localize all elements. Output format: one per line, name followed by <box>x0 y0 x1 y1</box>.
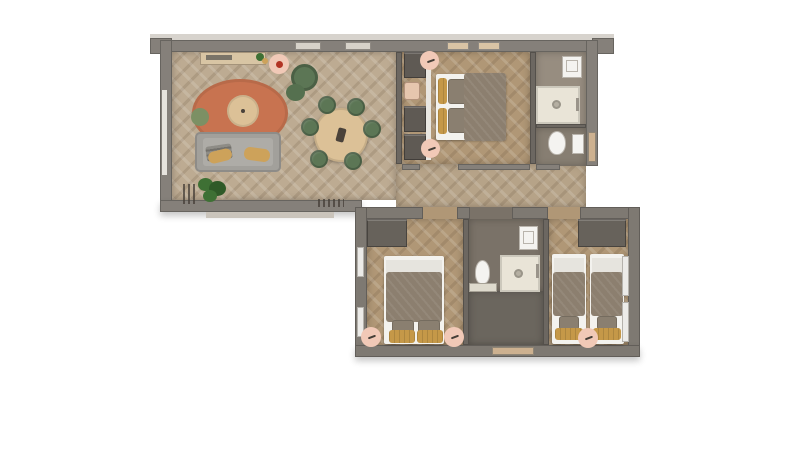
bedside-rug-b3 <box>578 328 598 348</box>
lower-right-wall <box>628 207 640 357</box>
bedroom-south-wall-left <box>402 164 420 170</box>
shower-upper-tap <box>576 98 579 111</box>
accent-chair <box>404 82 420 100</box>
radiator-b2-top <box>357 247 364 277</box>
wardrobe-bedroom-2 <box>367 219 407 247</box>
window-living-2 <box>345 42 371 50</box>
dining-chair-6 <box>344 152 362 170</box>
bath-lower-cabinet <box>469 283 497 292</box>
bed-3-left-blanket <box>553 272 585 316</box>
bedroom-south-wall-right <box>458 164 530 170</box>
wardrobe-bedroom-3 <box>578 219 626 247</box>
bed-2-pillow-right <box>417 330 443 343</box>
washbasin-lower-bowl <box>523 231 534 244</box>
lower-top-wall-3 <box>512 207 548 219</box>
wall-bath-bedroom3 <box>543 219 549 345</box>
window-plants-left <box>183 184 196 204</box>
bedside-rug-b2-left <box>361 327 381 347</box>
bath-upper-inner-wall <box>536 124 586 128</box>
floor-plan-canvas <box>0 0 800 450</box>
dining-chair-5 <box>310 150 328 168</box>
entrance-door <box>492 347 534 355</box>
door-gap-hall <box>470 207 512 219</box>
master-bed-pillow-bottom <box>438 108 447 134</box>
shower-lower-drain <box>514 269 523 278</box>
bath-upper-shelf <box>572 134 584 154</box>
window-plants-bottom <box>318 199 344 207</box>
wall-living-bedroom <box>396 52 402 164</box>
coffee-table-knob <box>241 109 245 113</box>
window-bedroom-2 <box>478 42 500 50</box>
door-gap-bedroom-3 <box>548 207 580 219</box>
dining-chair-3 <box>301 118 319 136</box>
radiator-b3-bottom <box>622 302 629 342</box>
corridor-floor <box>396 164 586 207</box>
dining-chair-4 <box>363 120 381 138</box>
dining-chair-2 <box>347 98 365 116</box>
window-bedroom-1 <box>447 42 469 50</box>
side-table-vase <box>276 61 283 68</box>
terrace-step <box>206 212 334 218</box>
top-wall <box>160 40 598 52</box>
sideboard-tray <box>206 55 232 60</box>
toilet-lower <box>475 260 490 284</box>
bedside-pouf-bottom <box>421 139 440 158</box>
door-gap-bedroom-2 <box>423 207 457 219</box>
bedside-pouf-top <box>420 51 439 70</box>
toilet-upper <box>548 131 566 155</box>
closet-box-mid <box>404 106 426 132</box>
potted-plant-leaf-3 <box>203 190 217 202</box>
door-upper-right <box>588 132 596 162</box>
shower-upper-drain <box>552 100 561 109</box>
window-living-1 <box>295 42 321 50</box>
ottoman-green <box>286 84 305 101</box>
bed-2-pillow-left <box>389 330 415 343</box>
green-pouf <box>191 108 209 126</box>
radiator-b3-top <box>622 256 629 296</box>
bed-3-right-blanket <box>591 272 623 316</box>
bed-2-blanket <box>386 272 442 322</box>
sideboard-accent <box>262 58 268 64</box>
master-bed-pillow-top <box>438 78 447 104</box>
bedside-rug-b2-right <box>444 327 464 347</box>
left-wall-window <box>162 90 167 175</box>
shower-lower-tap <box>536 264 539 278</box>
master-bed-blanket <box>464 73 506 141</box>
wall-bedroom2-bath <box>463 219 469 345</box>
dining-chair-1 <box>318 96 336 114</box>
lower-top-wall-2 <box>457 207 470 219</box>
washbasin-upper-bowl <box>566 60 578 72</box>
entry-hall-floor <box>469 291 543 345</box>
bath-upper-south-wall <box>536 164 560 170</box>
